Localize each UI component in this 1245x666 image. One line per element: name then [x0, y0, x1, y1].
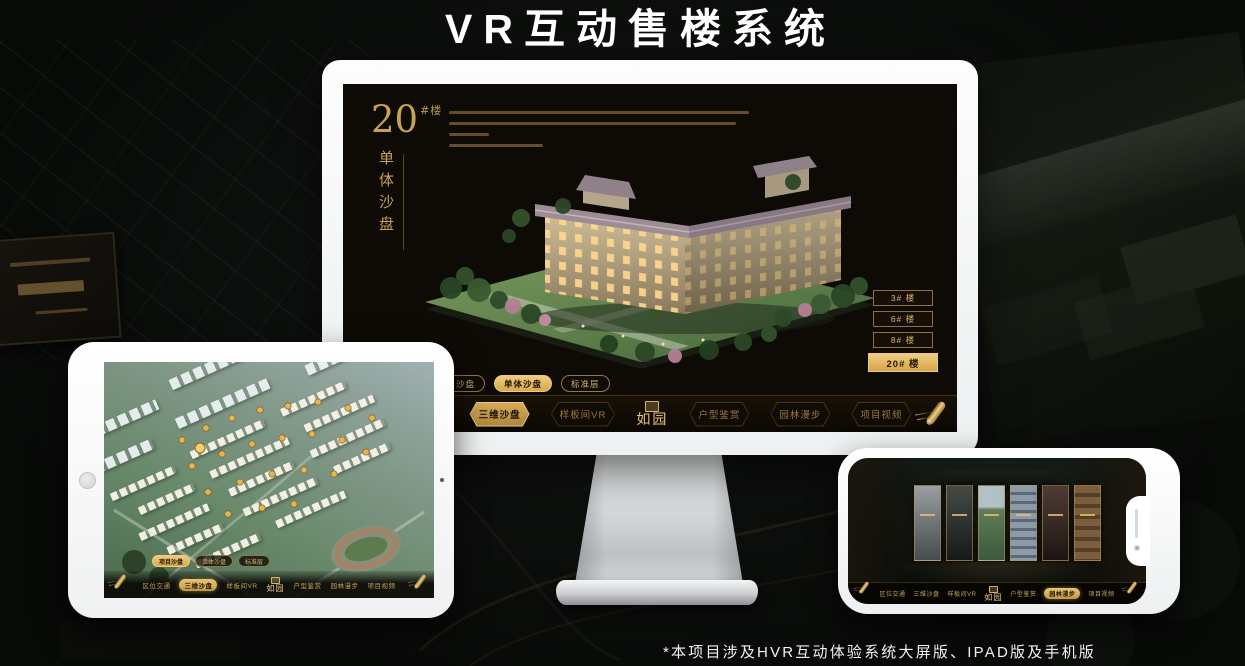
phone-device: 区位交通 三维沙盘 样板间VR 如园 户型鉴赏 园林漫步 项目视频 — [838, 448, 1180, 614]
nav-item-showroom-vr[interactable]: 样板间VR — [948, 589, 977, 598]
scene-panel-garden[interactable] — [978, 485, 1005, 561]
nav-item-3d-sandbox[interactable]: 三维沙盘 — [179, 579, 217, 591]
description-paragraph — [449, 111, 749, 155]
section-title-vertical: 单体沙盘 — [376, 150, 397, 238]
ipad-camera-icon — [440, 478, 444, 482]
nav-item-project-video[interactable]: 项目视频 — [847, 402, 915, 427]
scroll-handle-icon[interactable] — [410, 574, 428, 591]
scroll-handle-icon[interactable] — [110, 574, 128, 591]
ipad-sub-tabs: 项目沙盘 单体沙盘 标准层 — [152, 555, 270, 567]
phone-screen: 区位交通 三维沙盘 样板间VR 如园 户型鉴赏 园林漫步 项目视频 — [848, 458, 1146, 604]
floor-button-group: 3# 楼 6# 楼 8# 楼 20# 楼 — [867, 290, 939, 372]
sandbox-sub-tabs: 项目沙盘 单体沙盘 标准层 — [427, 375, 610, 392]
scene-panel-facade[interactable] — [1010, 485, 1037, 561]
description-line — [449, 144, 543, 147]
tab-single-building-sandbox[interactable]: 单体沙盘 — [494, 375, 552, 392]
floor-button-3[interactable]: 3# 楼 — [873, 290, 933, 306]
description-line — [449, 133, 489, 136]
seal-icon — [989, 586, 998, 593]
nav-item-unit-plans[interactable]: 户型鉴赏 — [294, 580, 322, 590]
ipad-device: 项目沙盘 单体沙盘 标准层 区位交通 三维沙盘 样板间VR 如园 户型鉴赏 园林… — [68, 342, 454, 618]
footnote-disclaimer: *本项目涉及HVR互动体验系统大屏版、IPAD版及手机版 — [663, 641, 1096, 662]
scene-panel-interior-dark[interactable] — [946, 485, 973, 561]
scroll-handle-icon[interactable] — [1124, 581, 1139, 595]
nav-item-project-video[interactable]: 项目视频 — [368, 580, 396, 590]
nav-item-showroom-vr[interactable]: 样板间VR — [226, 580, 257, 590]
phone-notch — [1126, 496, 1150, 566]
floor-button-8[interactable]: 8# 楼 — [873, 332, 933, 348]
tab-single-building-sandbox[interactable]: 单体沙盘 — [195, 555, 233, 567]
building-number-badges — [179, 399, 375, 517]
ipad-screen: 项目沙盘 单体沙盘 标准层 区位交通 三维沙盘 样板间VR 如园 户型鉴赏 园林… — [104, 362, 434, 598]
building-number-heading: 20#楼 — [371, 100, 442, 140]
nav-item-project-video[interactable]: 项目视频 — [1088, 589, 1114, 598]
brand-logo: 如园 — [636, 401, 668, 427]
seal-icon — [271, 577, 280, 584]
nav-item-unit-plans[interactable]: 户型鉴赏 — [685, 402, 753, 427]
building-model-illustration[interactable] — [413, 148, 883, 368]
active-building-badge — [195, 443, 205, 453]
tab-standard-floor[interactable]: 标准层 — [238, 555, 270, 567]
seal-icon — [645, 401, 659, 412]
monitor-stand-base — [556, 580, 758, 605]
scroll-handle-icon[interactable] — [856, 581, 871, 595]
scene-panel-interior-warm[interactable] — [1042, 485, 1069, 561]
nav-item-location-traffic[interactable]: 区位交通 — [142, 580, 170, 590]
description-line — [449, 111, 749, 114]
scene-panel-study[interactable] — [1074, 485, 1101, 561]
scene-panel-courtyard[interactable] — [914, 485, 941, 561]
monitor-stand-neck — [575, 452, 743, 584]
scroll-handle-icon[interactable] — [919, 400, 949, 428]
description-line — [449, 122, 736, 125]
floor-button-6[interactable]: 6# 楼 — [873, 311, 933, 327]
marketing-poster: VR互动售楼系统 *本项目涉及HVR互动体验系统大屏版、IPAD版及手机版 20… — [0, 0, 1245, 666]
tab-project-sandbox[interactable]: 项目沙盘 — [152, 555, 190, 567]
ipad-home-button — [79, 472, 96, 489]
nav-item-showroom-vr[interactable]: 样板间VR — [547, 402, 620, 427]
brand-logo: 如园 — [267, 577, 285, 593]
nav-item-garden-walk[interactable]: 园林漫步 — [331, 580, 359, 590]
scene-panel-gallery — [914, 485, 1101, 561]
page-title: VR互动售楼系统 — [0, 2, 1245, 56]
nav-item-garden-walk[interactable]: 园林漫步 — [1044, 588, 1080, 599]
nav-item-unit-plans[interactable]: 户型鉴赏 — [1010, 589, 1036, 598]
floor-button-20[interactable]: 20# 楼 — [868, 353, 938, 372]
phone-bottom-nav: 区位交通 三维沙盘 样板间VR 如园 户型鉴赏 园林漫步 项目视频 — [848, 582, 1146, 604]
tab-standard-floor[interactable]: 标准层 — [561, 375, 610, 392]
title-divider-line — [403, 154, 404, 250]
nav-item-3d-sandbox[interactable]: 三维沙盘 — [466, 402, 534, 427]
ipad-bottom-nav: 区位交通 三维沙盘 样板间VR 如园 户型鉴赏 园林漫步 项目视频 — [104, 571, 434, 598]
nav-item-garden-walk[interactable]: 园林漫步 — [766, 402, 834, 427]
brand-logo: 如园 — [984, 586, 1002, 602]
speaker-icon — [1135, 509, 1138, 538]
nav-item-location-traffic[interactable]: 区位交通 — [880, 589, 906, 598]
camera-icon — [1134, 545, 1140, 551]
nav-item-3d-sandbox[interactable]: 三维沙盘 — [914, 589, 940, 598]
